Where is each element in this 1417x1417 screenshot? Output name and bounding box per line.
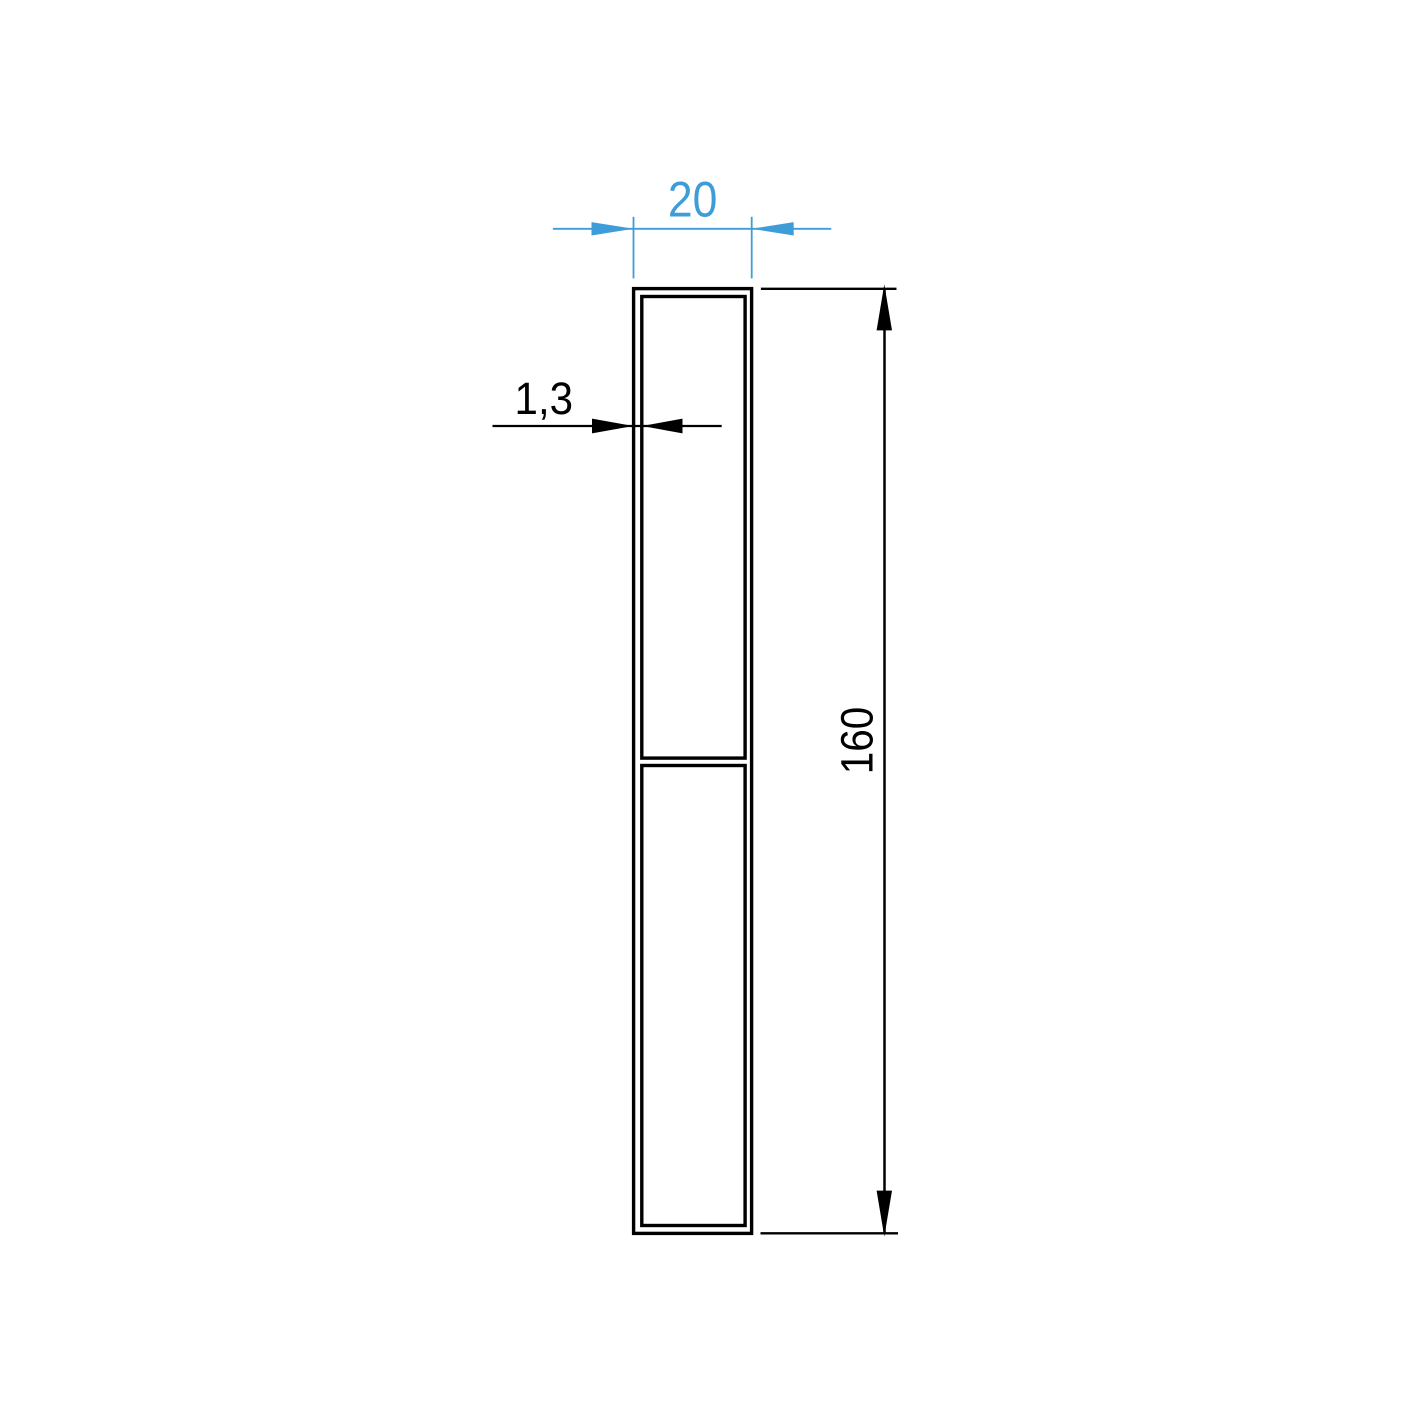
svg-text:160: 160 xyxy=(831,707,882,775)
svg-text:1,3: 1,3 xyxy=(515,373,574,424)
svg-text:20: 20 xyxy=(668,171,718,227)
